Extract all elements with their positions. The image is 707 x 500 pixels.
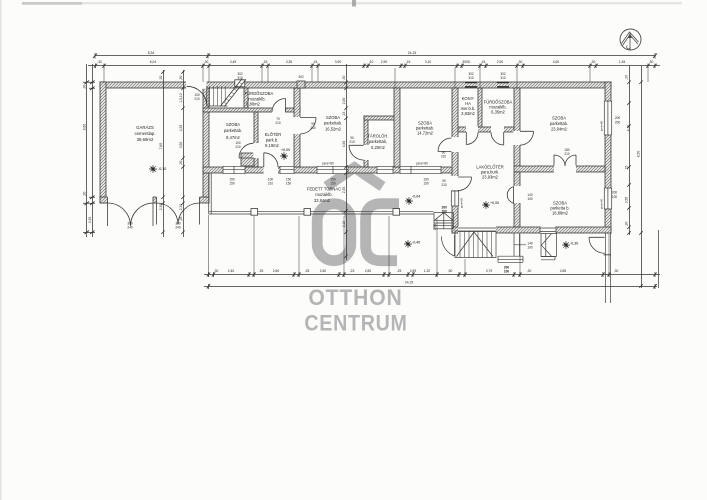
svg-text:302: 302: [298, 75, 304, 79]
svg-text:23,04m2: 23,04m2: [551, 127, 568, 132]
svg-text:18,88m2: 18,88m2: [552, 211, 569, 216]
svg-text:parkettab.: parkettab.: [550, 121, 568, 126]
svg-text:6,04: 6,04: [150, 60, 157, 64]
svg-text:,30: ,30: [625, 75, 629, 80]
svg-text:,30: ,30: [214, 269, 219, 273]
svg-text:parkettab.: parkettab.: [224, 128, 242, 133]
svg-text:8,60: 8,60: [82, 124, 86, 131]
svg-text:100: 100: [527, 246, 533, 250]
svg-text:2,30: 2,30: [159, 204, 163, 211]
svg-text:,30: ,30: [179, 76, 183, 81]
svg-text:,25: ,25: [259, 269, 264, 273]
svg-text:cementlap.: cementlap.: [134, 131, 155, 136]
svg-text:150: 150: [330, 182, 336, 186]
svg-text:,30: ,30: [179, 161, 183, 166]
svg-text:,30: ,30: [159, 76, 163, 81]
svg-text:5,20m2: 5,20m2: [371, 145, 385, 150]
svg-text:310: 310: [237, 76, 243, 80]
svg-text:pere=60: pere=60: [416, 162, 428, 166]
svg-text:,30: ,30: [649, 60, 654, 64]
svg-text:4,60: 4,60: [553, 60, 560, 64]
svg-text:,30: ,30: [82, 192, 86, 197]
svg-text:3,83m2: 3,83m2: [461, 111, 475, 116]
svg-text:200: 200: [615, 121, 621, 125]
svg-text:4,35: 4,35: [179, 125, 183, 132]
svg-text:16,52m2: 16,52m2: [325, 127, 342, 132]
svg-text:210: 210: [441, 183, 447, 187]
svg-text:2,60: 2,60: [273, 269, 280, 273]
svg-text:200: 200: [442, 209, 448, 213]
svg-text:,15: ,15: [313, 60, 318, 64]
svg-text:3,50: 3,50: [625, 197, 629, 204]
svg-text:-0,30: -0,30: [570, 242, 578, 246]
svg-text:3,45: 3,45: [230, 60, 237, 64]
svg-text:100: 100: [527, 197, 533, 201]
svg-text:8,50: 8,50: [637, 151, 641, 158]
svg-text:-0,40: -0,40: [412, 241, 420, 245]
svg-text:210: 210: [194, 97, 200, 101]
svg-text:,15: ,15: [342, 112, 346, 117]
svg-text:24,15: 24,15: [405, 281, 413, 285]
svg-text:OTTHON: OTTHON: [308, 284, 402, 310]
svg-text:,25: ,25: [305, 269, 310, 273]
svg-text:pere=80: pere=80: [600, 120, 604, 131]
svg-text:2,90: 2,90: [381, 60, 388, 64]
svg-text:210: 210: [441, 155, 447, 159]
svg-text:150: 150: [286, 182, 292, 186]
svg-text:2,40: 2,40: [228, 269, 235, 273]
svg-text:3005: 3005: [462, 60, 470, 64]
svg-text:3,79: 3,79: [486, 269, 493, 273]
svg-text:3,35: 3,35: [286, 60, 293, 64]
svg-text:100: 100: [504, 269, 510, 273]
svg-text:-0,04: -0,04: [412, 195, 420, 199]
svg-text:,30: ,30: [518, 60, 523, 64]
svg-text:,30: ,30: [527, 269, 532, 273]
svg-text:7,60: 7,60: [159, 143, 163, 150]
svg-text:2,35: 2,35: [342, 187, 346, 194]
svg-text:1,5,10: 1,5,10: [179, 93, 183, 102]
svg-text:SZOBA: SZOBA: [326, 115, 340, 120]
svg-text:210: 210: [235, 145, 241, 149]
svg-text:6,35m2: 6,35m2: [491, 110, 505, 115]
svg-text:210: 210: [564, 152, 570, 156]
svg-text:200: 200: [612, 191, 618, 195]
svg-text:24,15: 24,15: [408, 51, 417, 55]
svg-text:310: 310: [500, 76, 506, 80]
svg-text:2,00: 2,00: [342, 98, 346, 105]
svg-text:150: 150: [229, 182, 235, 186]
svg-text:TÁROLÓH.: TÁROLÓH.: [368, 134, 389, 139]
svg-text:2,35: 2,35: [88, 217, 92, 224]
svg-text:8,47m2: 8,47m2: [226, 135, 240, 140]
svg-text:2,18: 2,18: [342, 221, 346, 228]
svg-text:+0,00: +0,00: [490, 201, 499, 205]
svg-text:,15: ,15: [481, 60, 486, 64]
svg-text:240: 240: [127, 226, 133, 230]
svg-text:310: 310: [468, 76, 474, 80]
svg-text:,30: ,30: [97, 60, 102, 64]
svg-text:SZOBA: SZOBA: [552, 116, 566, 121]
svg-text:3,50: 3,50: [179, 142, 183, 149]
svg-text:8,34: 8,34: [148, 51, 155, 55]
svg-text:CENTRUM: CENTRUM: [304, 311, 407, 335]
svg-text:5,80m2: 5,80m2: [246, 102, 260, 107]
svg-text:2,35: 2,35: [433, 224, 437, 231]
svg-text:FÜRDŐSZOBA: FÜRDŐSZOBA: [245, 91, 274, 96]
svg-text:150: 150: [423, 182, 429, 186]
svg-text:,23: ,23: [350, 269, 355, 273]
svg-text:1,20: 1,20: [424, 269, 431, 273]
svg-text:3,10: 3,10: [425, 60, 432, 64]
svg-text:200: 200: [615, 116, 621, 120]
svg-text:4,72: 4,72: [627, 125, 631, 132]
svg-text:100: 100: [612, 195, 618, 199]
svg-text:2,60: 2,60: [365, 269, 372, 273]
svg-text:parkettab,: parkettab,: [369, 139, 387, 144]
svg-text:,30: ,30: [625, 222, 629, 227]
svg-text:,15: ,15: [263, 60, 268, 64]
svg-text:,30: ,30: [591, 60, 596, 64]
svg-text:,30: ,30: [82, 85, 86, 90]
svg-text:parkettab.: parkettab.: [324, 121, 342, 126]
svg-text:1,45: 1,45: [619, 60, 626, 64]
svg-text:4,85: 4,85: [560, 269, 567, 273]
svg-text:FEDETT TORNÁC: FEDETT TORNÁC: [307, 187, 341, 192]
svg-text:2,30: 2,30: [179, 204, 183, 211]
svg-text:2,50: 2,50: [497, 60, 504, 64]
svg-text:240: 240: [175, 226, 181, 230]
svg-text:pere=60: pere=60: [322, 162, 334, 166]
svg-text:GARÁZS: GARÁZS: [136, 125, 154, 130]
svg-text:,15: ,15: [625, 166, 629, 171]
svg-text:210: 210: [268, 182, 274, 186]
svg-text:8,19m2: 8,19m2: [265, 143, 279, 148]
svg-text:-0,10: -0,10: [158, 167, 166, 171]
svg-text:23,93m2: 23,93m2: [482, 175, 499, 180]
svg-text:210: 210: [349, 140, 355, 144]
svg-text:3,90: 3,90: [335, 60, 342, 64]
svg-text:39,69m2: 39,69m2: [137, 137, 154, 142]
svg-text:,25: ,25: [397, 269, 402, 273]
svg-text:mozaiklb.: mozaiklb.: [315, 192, 332, 197]
svg-text:,30: ,30: [614, 269, 619, 273]
svg-text:,30: ,30: [342, 76, 346, 81]
svg-text:2,60: 2,60: [320, 269, 327, 273]
svg-text:,15: ,15: [406, 60, 411, 64]
svg-text:park.b.: park.b.: [266, 138, 279, 143]
svg-text:,10: ,10: [369, 60, 374, 64]
svg-text:pere=60: pere=60: [600, 198, 604, 209]
svg-text:+0,00: +0,00: [281, 148, 290, 152]
svg-text:4,55: 4,55: [342, 141, 346, 148]
svg-text:210: 210: [310, 126, 316, 130]
svg-text:ELŐTÉR: ELŐTÉR: [265, 132, 281, 137]
svg-text:,30: ,30: [204, 60, 209, 64]
svg-text:2,69: 2,69: [410, 269, 417, 273]
svg-text:14,72m2: 14,72m2: [417, 131, 434, 136]
svg-text:33,84m2: 33,84m2: [314, 198, 331, 203]
svg-text:,50: ,50: [448, 269, 453, 273]
svg-text:210: 210: [275, 121, 281, 125]
svg-text:pere=60: pere=60: [460, 197, 464, 208]
svg-text:SZOBA: SZOBA: [226, 122, 240, 127]
